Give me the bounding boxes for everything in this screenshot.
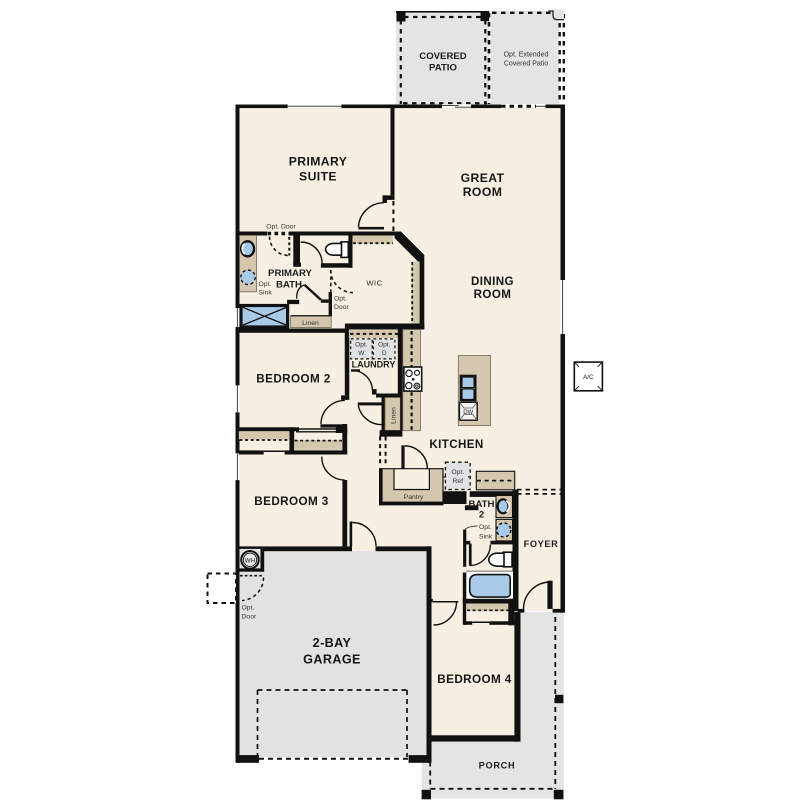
svg-text:Linen: Linen	[391, 407, 398, 424]
svg-text:Opt.: Opt.	[242, 605, 255, 612]
svg-text:Ref: Ref	[453, 478, 464, 485]
svg-text:Opt. Door: Opt. Door	[266, 224, 296, 231]
svg-text:2: 2	[479, 510, 484, 521]
svg-text:Opt.: Opt.	[259, 281, 272, 288]
svg-text:Sink: Sink	[259, 290, 273, 297]
svg-text:BEDROOM 3: BEDROOM 3	[254, 495, 328, 508]
svg-text:W: W	[358, 350, 365, 357]
svg-text:WIC: WIC	[366, 279, 382, 288]
svg-text:BEDROOM 4: BEDROOM 4	[437, 673, 511, 686]
svg-text:BATH: BATH	[469, 499, 495, 510]
svg-text:Linen: Linen	[302, 320, 319, 327]
svg-text:Opt.: Opt.	[334, 296, 347, 303]
svg-text:ROOM: ROOM	[463, 185, 503, 199]
svg-text:Opt. Extended: Opt. Extended	[504, 52, 549, 59]
svg-text:LAUNDRY: LAUNDRY	[352, 359, 396, 369]
svg-text:ROOM: ROOM	[474, 288, 512, 301]
svg-text:Opt.: Opt.	[378, 342, 391, 349]
svg-text:GARAGE: GARAGE	[303, 653, 361, 667]
svg-text:Opt.: Opt.	[355, 342, 368, 349]
svg-text:Pantry: Pantry	[404, 494, 424, 501]
svg-text:COVERED: COVERED	[419, 51, 467, 62]
svg-text:Opt.: Opt.	[479, 524, 492, 531]
svg-text:KITCHEN: KITCHEN	[429, 438, 483, 451]
svg-text:PORCH: PORCH	[479, 761, 516, 771]
svg-text:PATIO: PATIO	[429, 63, 457, 74]
svg-text:D: D	[382, 350, 387, 357]
svg-text:BEDROOM 2: BEDROOM 2	[256, 372, 330, 385]
svg-text:PRIMARY: PRIMARY	[289, 154, 348, 168]
svg-text:Door: Door	[242, 614, 257, 621]
svg-text:GREAT: GREAT	[461, 171, 505, 185]
svg-text:2-BAY: 2-BAY	[313, 636, 352, 650]
svg-text:WH: WH	[245, 557, 256, 564]
svg-text:DINING: DINING	[471, 275, 514, 288]
svg-text:BATH: BATH	[276, 280, 302, 291]
svg-text:SUITE: SUITE	[299, 169, 337, 183]
svg-text:Sink: Sink	[479, 534, 493, 541]
svg-text:Door: Door	[334, 304, 349, 311]
svg-text:Covered Patio: Covered Patio	[504, 61, 548, 68]
svg-text:FOYER: FOYER	[524, 539, 559, 549]
svg-text:A/C: A/C	[583, 374, 594, 381]
svg-text:PRIMARY: PRIMARY	[268, 268, 312, 279]
svg-text:DW: DW	[463, 410, 473, 416]
svg-text:Opt.: Opt.	[451, 469, 464, 476]
